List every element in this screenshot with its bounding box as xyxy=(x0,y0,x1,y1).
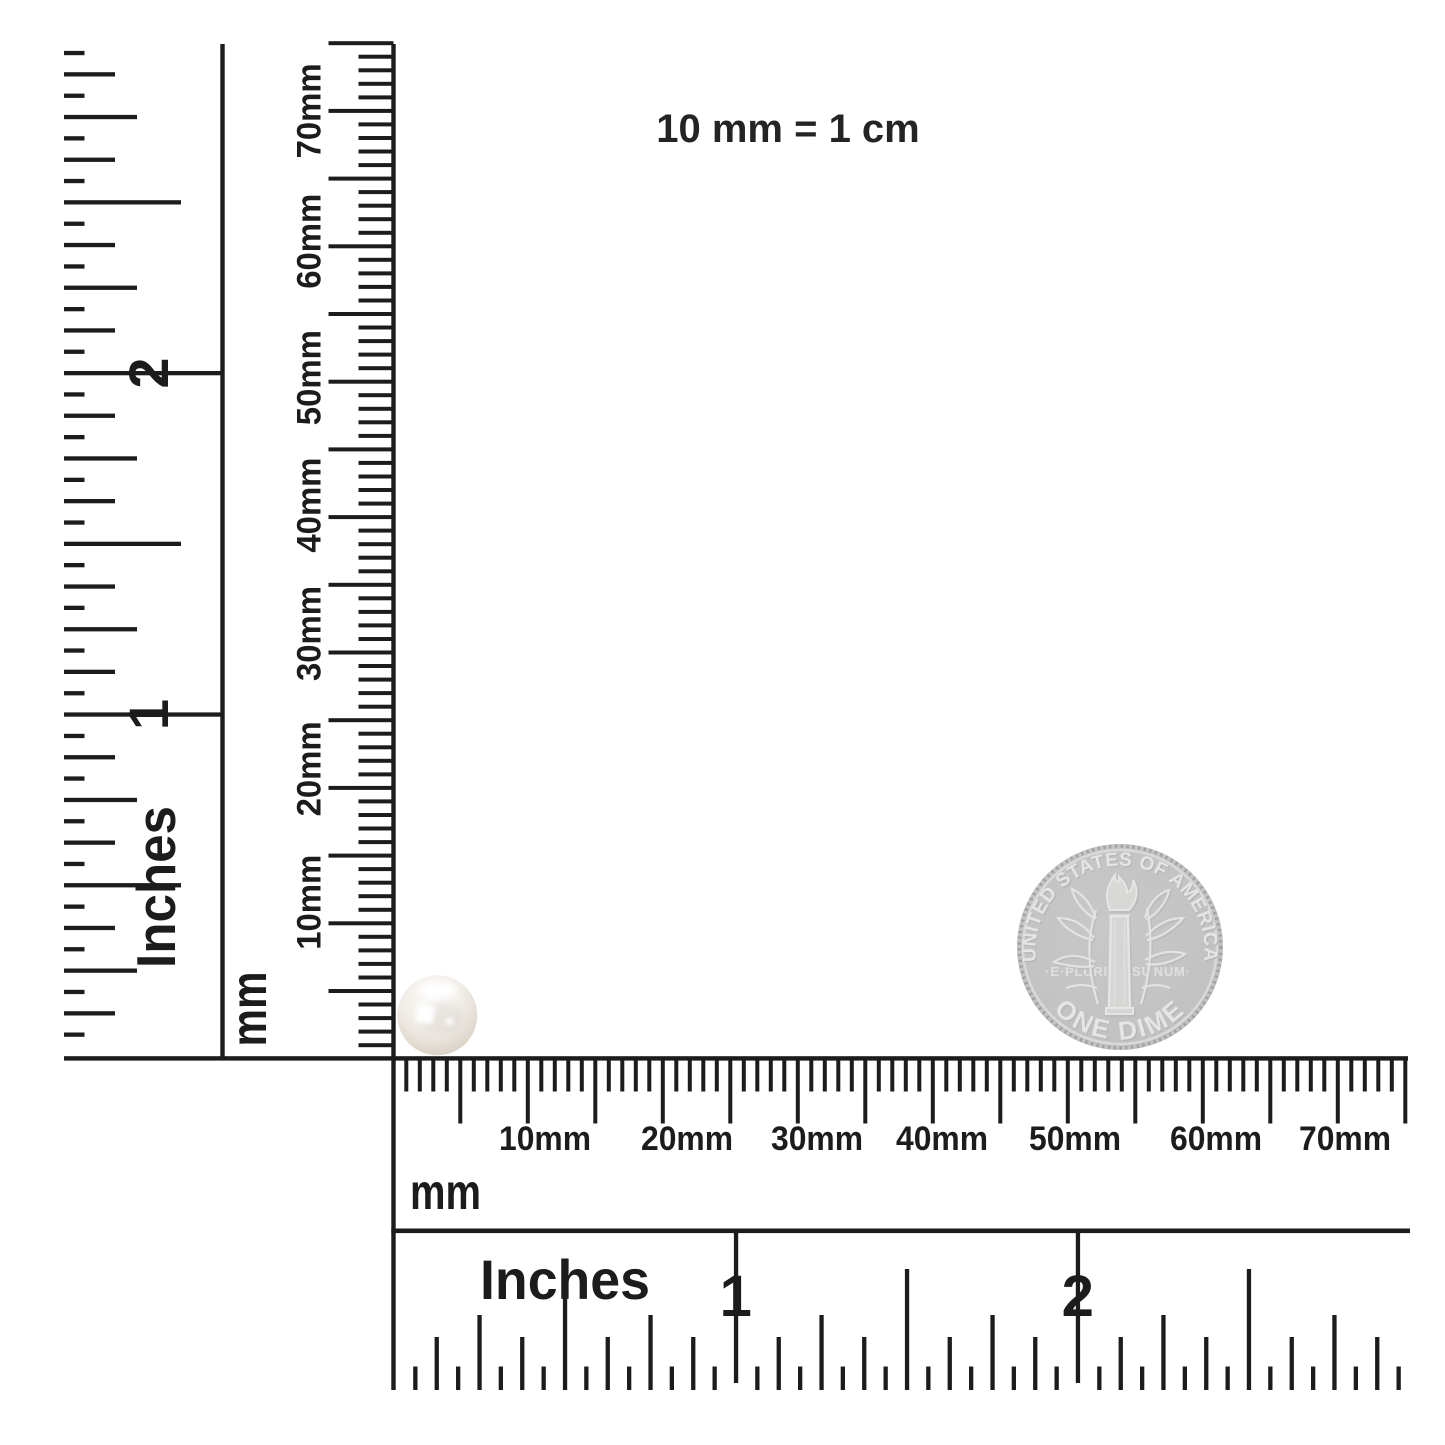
svg-text:50mm: 50mm xyxy=(1029,1120,1121,1158)
svg-text:50mm: 50mm xyxy=(291,330,329,425)
svg-text:30mm: 30mm xyxy=(771,1120,863,1158)
svg-text:Inches: Inches xyxy=(125,806,187,968)
svg-text:2: 2 xyxy=(1062,1264,1094,1329)
svg-text:60mm: 60mm xyxy=(1170,1120,1262,1158)
svg-text:30mm: 30mm xyxy=(291,586,329,681)
svg-text:40mm: 40mm xyxy=(896,1120,988,1158)
svg-text:10 mm = 1 cm: 10 mm = 1 cm xyxy=(656,107,920,151)
svg-text:Inches: Inches xyxy=(480,1248,650,1311)
svg-text:20mm: 20mm xyxy=(291,721,329,816)
svg-text:70mm: 70mm xyxy=(1299,1120,1391,1158)
svg-text:mm: mm xyxy=(410,1164,481,1220)
svg-text:mm: mm xyxy=(221,972,277,1047)
svg-text:10mm: 10mm xyxy=(499,1120,591,1158)
svg-text:2: 2 xyxy=(117,358,180,389)
svg-text:70mm: 70mm xyxy=(291,63,329,158)
svg-text:1: 1 xyxy=(720,1264,752,1329)
svg-text:40mm: 40mm xyxy=(291,458,329,553)
svg-text:60mm: 60mm xyxy=(291,194,329,289)
svg-text:20mm: 20mm xyxy=(641,1120,733,1158)
svg-text:1: 1 xyxy=(117,699,180,730)
svg-text:10mm: 10mm xyxy=(291,855,329,950)
